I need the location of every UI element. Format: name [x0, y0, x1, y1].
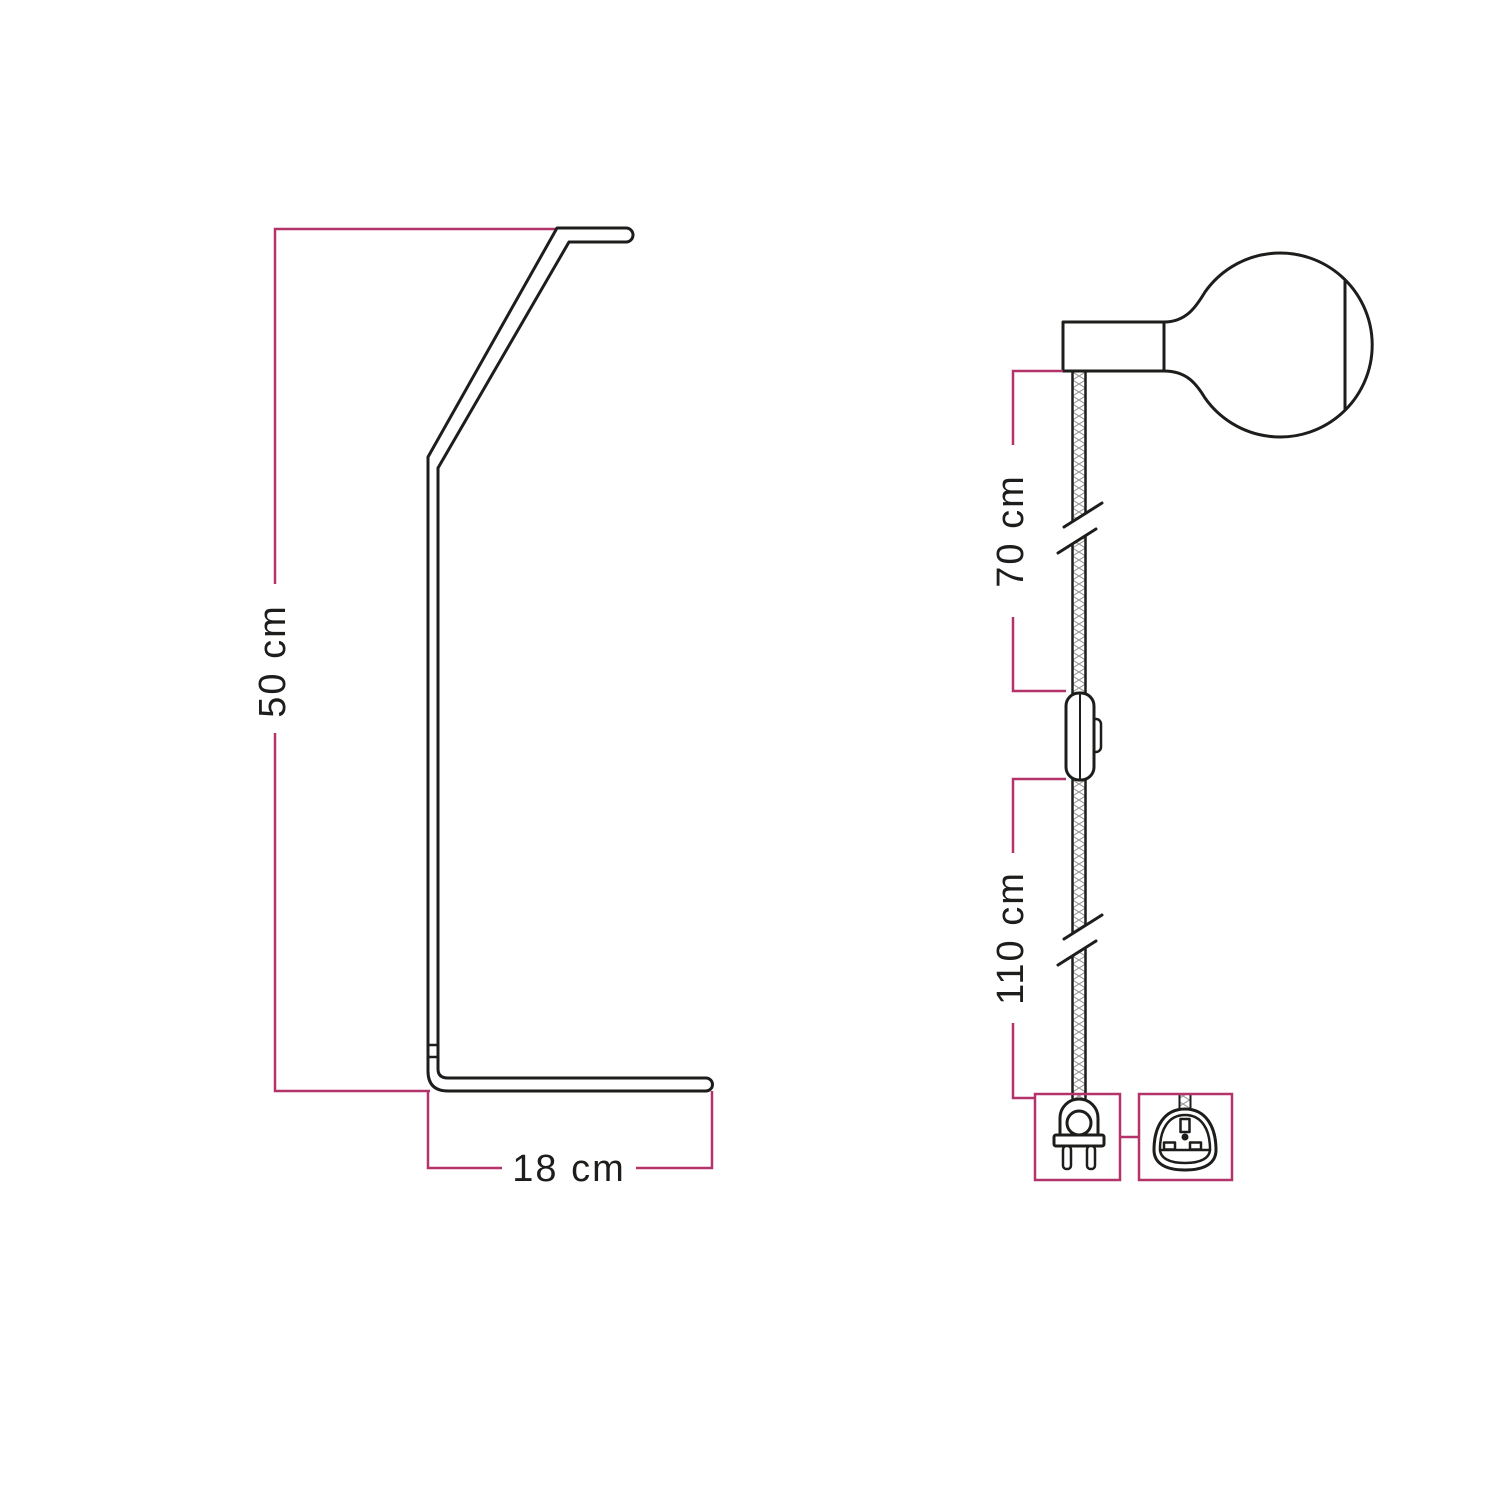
inline-switch-icon — [1066, 693, 1101, 780]
lamp-stand-figure — [428, 228, 713, 1091]
dimension-line — [428, 1091, 502, 1168]
dimension-line — [1013, 371, 1063, 445]
euro-plug-icon — [1054, 1099, 1104, 1169]
stand-height-dimension-line — [275, 229, 557, 1091]
dimension-diagram-page: 50 cm 18 cm — [0, 0, 1500, 1500]
dimension-line — [636, 1091, 712, 1168]
plug-cable-grip — [1067, 1111, 1091, 1135]
bulb-globe-icon — [1164, 253, 1372, 437]
dimension-diagram: 50 cm 18 cm — [0, 0, 1500, 1500]
lower-cable-dimension-label: 110 cm — [990, 871, 1032, 1005]
plug-center-dot — [1182, 1134, 1189, 1141]
uk-plug-icon — [1154, 1094, 1216, 1170]
upper-cable-dimension-label: 70 cm — [990, 474, 1032, 587]
dimension-line — [1013, 779, 1066, 853]
lamp-holder-icon — [1063, 322, 1164, 371]
plug-base — [1054, 1135, 1104, 1146]
dimension-line — [1013, 617, 1066, 691]
plug-pin — [1063, 1146, 1071, 1169]
lamp-stand-outline — [428, 228, 713, 1091]
cable-assembly-figure: 70 cm 110 cm — [990, 253, 1372, 1180]
dimension-line — [275, 229, 557, 584]
neutral-pin — [1190, 1143, 1201, 1150]
stand-height-dimension-label: 50 cm — [252, 604, 294, 717]
earth-pin — [1181, 1119, 1190, 1132]
live-pin — [1164, 1143, 1175, 1150]
plug-pin — [1087, 1146, 1095, 1169]
stand-depth-dimension-label: 18 cm — [512, 1148, 625, 1190]
dimension-line — [1013, 1023, 1035, 1098]
dimension-line — [275, 733, 430, 1091]
